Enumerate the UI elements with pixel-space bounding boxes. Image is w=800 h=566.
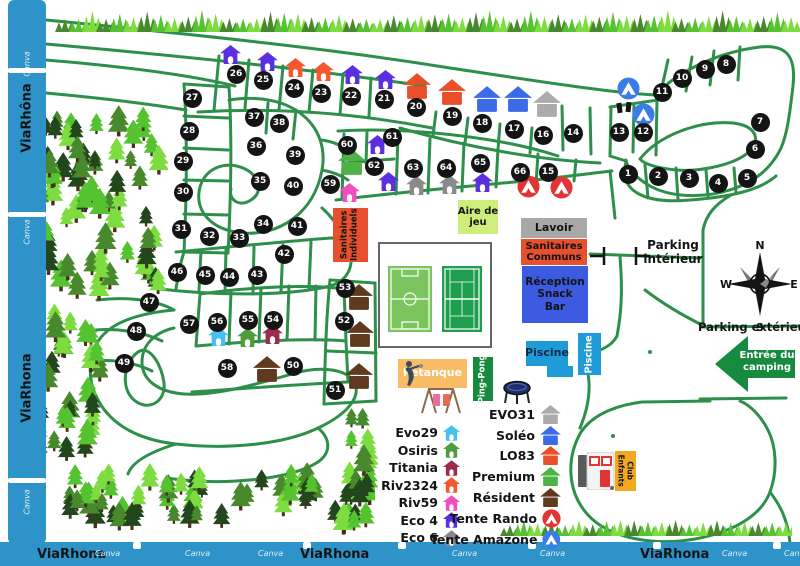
house-icon-eco4 xyxy=(378,172,399,191)
legend-tent-icon-tente-rando xyxy=(542,509,561,528)
house-icon-soleo xyxy=(504,86,532,112)
viarhona-label-bottom-2: ViaRhona xyxy=(300,547,369,562)
canva-watermark: Canva xyxy=(452,549,477,558)
canva-watermark: Canva xyxy=(722,549,747,558)
facility-club-enfants: ClubEnfants xyxy=(615,451,636,491)
compass-west: W xyxy=(720,278,732,291)
pitch-marker-53: 53 xyxy=(336,279,355,298)
pitch-marker-35: 35 xyxy=(251,172,270,191)
canva-watermark: Canva xyxy=(258,549,283,558)
facility-piscine-2: Piscine xyxy=(578,333,601,375)
map-house-eco4 xyxy=(342,65,363,84)
compass-north: N xyxy=(755,239,764,252)
pitch-marker-10: 10 xyxy=(673,69,692,88)
pitch-marker-55: 55 xyxy=(239,311,258,330)
map-house-eco4 xyxy=(378,172,399,191)
pitch-marker-30: 30 xyxy=(174,183,193,202)
legend-item-evo31: EVO31 xyxy=(430,404,561,425)
pitch-marker-31: 31 xyxy=(172,220,191,239)
pitch-marker-26: 26 xyxy=(227,65,246,84)
legend-house-icon-resident xyxy=(540,488,561,507)
viarhona-strip-left xyxy=(8,0,46,544)
trampoline-icon xyxy=(502,378,532,405)
viarhona-label-left-2: ViaRhona xyxy=(20,353,35,422)
pitch-marker-20: 20 xyxy=(407,98,426,117)
map-house-evo31 xyxy=(533,91,561,117)
canva-watermark: Canva xyxy=(23,489,32,514)
pitch-marker-54: 54 xyxy=(264,311,283,330)
pitch-marker-49: 49 xyxy=(115,354,134,373)
pitch-marker-23: 23 xyxy=(312,84,331,103)
pitch-marker-62: 62 xyxy=(365,157,384,176)
house-icon-soleo xyxy=(473,86,501,112)
map-house-eco4 xyxy=(257,52,278,71)
map-house-riv2324 xyxy=(285,58,306,77)
pitch-marker-66: 66 xyxy=(511,163,530,182)
house-icon-lo83 xyxy=(403,73,431,99)
legend-house-icon-premium xyxy=(540,467,561,486)
pitch-marker-6: 6 xyxy=(746,140,765,159)
forest-patch xyxy=(60,462,375,536)
pitch-marker-44: 44 xyxy=(220,268,239,287)
canva-watermark: Canva xyxy=(540,549,565,558)
legend-right-column: EVO31 Soléo LO83 Premium Résident Tente … xyxy=(430,404,561,550)
pitch-marker-25: 25 xyxy=(254,71,273,90)
house-icon-eco4 xyxy=(375,70,396,89)
canva-watermark: Canva xyxy=(23,219,32,244)
pitch-marker-1: 1 xyxy=(619,165,638,184)
legend-item-tente-rando: Tente Rando xyxy=(430,508,561,529)
house-icon-lo83 xyxy=(438,79,466,105)
pitch-marker-5: 5 xyxy=(738,169,757,188)
map-house-eco4 xyxy=(220,45,241,64)
pitch-marker-61: 61 xyxy=(383,128,402,147)
map-house-eco4 xyxy=(375,70,396,89)
map-house-lo83 xyxy=(438,79,466,105)
legend-label-soleo: Soléo xyxy=(496,428,535,443)
pitch-marker-17: 17 xyxy=(505,120,524,139)
map-house-lo83 xyxy=(403,73,431,99)
map-tente-amazone xyxy=(617,77,640,100)
legend-label-evo31: EVO31 xyxy=(489,407,535,422)
pitch-marker-27: 27 xyxy=(183,89,202,108)
pitch-marker-64: 64 xyxy=(437,159,456,178)
house-icon-evo31 xyxy=(533,91,561,117)
pitch-marker-7: 7 xyxy=(751,113,770,132)
map-house-soleo xyxy=(473,86,501,112)
pitch-marker-2: 2 xyxy=(649,167,668,186)
house-icon-riv2324 xyxy=(313,62,334,81)
map-house-resident xyxy=(253,356,281,382)
pitch-marker-42: 42 xyxy=(275,245,294,264)
legend-item-lo83: LO83 xyxy=(430,446,561,467)
barrier-icon xyxy=(586,243,656,269)
football-pitch xyxy=(388,266,432,332)
pitch-marker-16: 16 xyxy=(534,126,553,145)
pitch-marker-43: 43 xyxy=(248,266,267,285)
pitch-marker-4: 4 xyxy=(709,174,728,193)
viarhona-label-left-1: ViaRhôna xyxy=(20,83,35,152)
pitch-marker-41: 41 xyxy=(288,217,307,236)
pitch-marker-36: 36 xyxy=(247,137,266,156)
pitch-marker-9: 9 xyxy=(696,60,715,79)
facility-ping-pong: Ping-Pong xyxy=(473,357,493,401)
house-icon-eco4 xyxy=(342,65,363,84)
pitch-marker-29: 29 xyxy=(174,152,193,171)
pitch-marker-8: 8 xyxy=(717,55,736,74)
house-icon-eco4 xyxy=(220,45,241,64)
pitch-marker-13: 13 xyxy=(610,123,629,142)
pitch-marker-50: 50 xyxy=(284,357,303,376)
pitch-marker-60: 60 xyxy=(338,136,357,155)
legend-item-premium: Premium xyxy=(430,466,561,487)
legend-item-resident: Résident xyxy=(430,487,561,508)
facility-piscine: Piscine xyxy=(526,341,568,366)
pitch-marker-48: 48 xyxy=(127,322,146,341)
tent-icon-tente-amazone xyxy=(617,77,640,100)
legend-label-resident: Résident xyxy=(473,490,535,505)
house-icon-resident xyxy=(345,363,373,389)
map-house-resident xyxy=(345,363,373,389)
viarhona-label-bottom-3: ViaRhona xyxy=(640,547,709,562)
pitch-marker-39: 39 xyxy=(286,146,305,165)
legend-house-icon-soleo xyxy=(540,426,561,445)
house-icon-osiris xyxy=(237,328,258,347)
map-house-riv2324 xyxy=(313,62,334,81)
canva-watermark: Canva xyxy=(23,51,32,76)
pitch-marker-58: 58 xyxy=(218,359,237,378)
pitch-marker-37: 37 xyxy=(245,108,264,127)
house-icon-eco4 xyxy=(472,173,493,192)
pitch-marker-18: 18 xyxy=(473,114,492,133)
house-icon-resident xyxy=(253,356,281,382)
map-house-eco4 xyxy=(472,173,493,192)
compass-east: E xyxy=(790,278,798,291)
pitch-marker-12: 12 xyxy=(634,123,653,142)
canva-watermark: Canva xyxy=(95,549,120,558)
pitch-marker-52: 52 xyxy=(335,312,354,331)
legend-tent-icon-tente-amazone xyxy=(542,530,561,549)
legend-label-tente-rando: Tente Rando xyxy=(449,511,537,526)
house-icon-riv2324 xyxy=(285,58,306,77)
pitch-marker-24: 24 xyxy=(285,79,304,98)
pitch-marker-63: 63 xyxy=(404,159,423,178)
pitch-marker-28: 28 xyxy=(180,122,199,141)
facility-reception-snack-bar: RéceptionSnackBar xyxy=(522,266,588,323)
legend-label-tente-amazone: Tente Amazone xyxy=(430,532,537,547)
legend-label-premium: Premium xyxy=(472,469,535,484)
pitch-marker-59: 59 xyxy=(321,175,340,194)
map-dot xyxy=(648,350,652,354)
sports-fields xyxy=(378,242,492,348)
pitch-marker-56: 56 xyxy=(208,313,227,332)
house-icon-eco6 xyxy=(406,176,427,195)
legend-house-icon-lo83 xyxy=(540,446,561,465)
house-icon-eco4 xyxy=(257,52,278,71)
house-icon-riv59 xyxy=(339,183,360,202)
tree-row-top xyxy=(55,8,800,34)
canva-watermark: Canva xyxy=(185,549,210,558)
map-house-riv59 xyxy=(339,183,360,202)
pitch-marker-51: 51 xyxy=(326,381,345,400)
pitch-marker-21: 21 xyxy=(375,90,394,109)
legend-item-tente-amazone: Tente Amazone xyxy=(430,529,561,550)
pitch-marker-40: 40 xyxy=(284,177,303,196)
pitch-marker-38: 38 xyxy=(270,114,289,133)
facility-lavoir: Lavoir xyxy=(521,218,587,238)
kids-club-bus-icon xyxy=(578,452,615,490)
pitch-marker-46: 46 xyxy=(168,263,187,282)
pitch-marker-32: 32 xyxy=(200,227,219,246)
pitch-marker-34: 34 xyxy=(254,215,273,234)
entrance-label: Entrée du camping xyxy=(738,350,796,373)
legend-house-icon-evo31 xyxy=(540,405,561,424)
pitch-marker-57: 57 xyxy=(180,315,199,334)
map-dot xyxy=(611,434,615,438)
legend-item-soleo: Soléo xyxy=(430,425,561,446)
forest-patch xyxy=(28,104,168,304)
pitch-marker-33: 33 xyxy=(230,229,249,248)
petanque-player-icon xyxy=(402,360,426,387)
facility-sanitaires-communs: SanitairesCommuns xyxy=(521,239,587,265)
legend-label-lo83: LO83 xyxy=(499,448,535,463)
pitch-marker-45: 45 xyxy=(196,266,215,285)
facility-aire-de-jeu: Aire dejeu xyxy=(458,200,498,234)
tennis-court xyxy=(442,266,482,332)
campsite-map: N E S W Entrée du camping Parking intéri… xyxy=(0,0,800,566)
piscine-extension xyxy=(547,366,573,377)
facility-sanitaires-individuels: SanitairesIndividuels xyxy=(333,208,368,262)
pitch-marker-11: 11 xyxy=(653,83,672,102)
map-house-soleo xyxy=(504,86,532,112)
map-house-eco6 xyxy=(406,176,427,195)
parking-exterieur-label: Parking extérieur xyxy=(698,321,800,334)
map-house-osiris xyxy=(237,328,258,347)
pitch-marker-65: 65 xyxy=(471,154,490,173)
pitch-marker-14: 14 xyxy=(564,124,583,143)
pitch-marker-3: 3 xyxy=(680,169,699,188)
pitch-marker-19: 19 xyxy=(443,107,462,126)
pitch-marker-22: 22 xyxy=(342,87,361,106)
canva-watermark: Canva xyxy=(784,549,800,558)
pitch-marker-15: 15 xyxy=(539,163,558,182)
pitch-marker-47: 47 xyxy=(140,293,159,312)
